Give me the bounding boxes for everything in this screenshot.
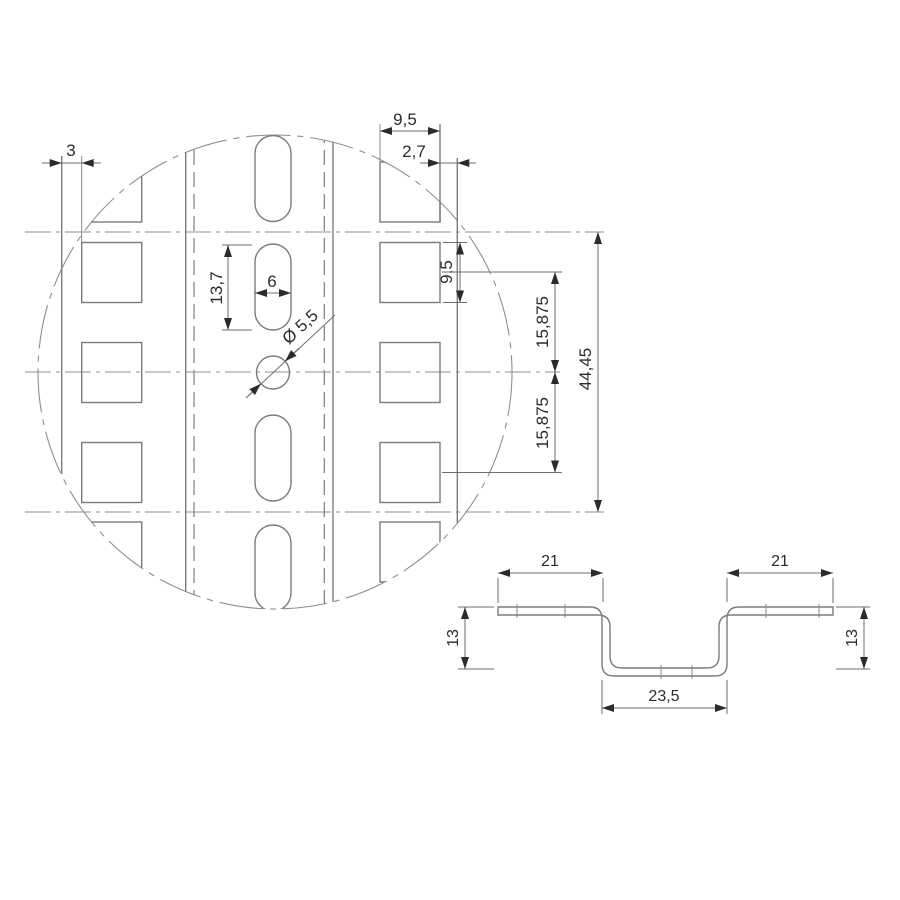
dim-channel-width-label: 23,5	[648, 688, 679, 705]
dim-slot-length: 13,7	[207, 245, 252, 330]
dim-row-pitch-upper-label: 15,875	[533, 296, 552, 348]
section-view: 21 21 13 13 23,5	[445, 553, 870, 714]
dim-hole-diameter-label: Ø 5,5	[279, 306, 322, 348]
dim-slot-length-label: 13,7	[207, 271, 226, 304]
dim-channel-width: 23,5	[602, 680, 727, 714]
detail-view: 3 9,5 2,7 13,7 6	[25, 110, 604, 616]
dim-flange-left-label: 21	[541, 553, 559, 570]
dim-square-width-top-label: 9,5	[393, 110, 417, 129]
dim-flange-right-label: 21	[771, 553, 789, 570]
dim-edge-margin: 3	[42, 141, 101, 163]
dim-flange-right: 21	[727, 553, 833, 603]
dim-depth-left: 13	[445, 607, 494, 669]
dim-depth-right-label: 13	[844, 629, 861, 647]
technical-drawing: 3 9,5 2,7 13,7 6	[0, 0, 900, 900]
dim-slot-width: 6	[255, 272, 291, 293]
dim-edge-offset-label: 2,7	[402, 142, 426, 161]
dim-total-span: 44,45	[576, 232, 598, 512]
dim-row-pitch-lower-label: 15,875	[533, 397, 552, 449]
dim-edge-offset: 2,7	[402, 142, 476, 163]
dim-row-pitch-lower: 15,875	[442, 372, 562, 473]
dim-edge-margin-label: 3	[66, 141, 75, 160]
dim-depth-left-label: 13	[445, 629, 462, 647]
dim-square-width-top: 9,5	[380, 110, 440, 131]
dim-total-span-label: 44,45	[576, 348, 595, 391]
dim-slot-width-label: 6	[267, 272, 276, 291]
dim-hole-diameter: Ø 5,5	[246, 306, 335, 398]
profile-outline	[498, 607, 833, 676]
dim-depth-right: 13	[836, 607, 870, 669]
drawing-sheet: 3 9,5 2,7 13,7 6	[0, 0, 900, 900]
centerlines	[25, 232, 604, 512]
dim-flange-left: 21	[498, 553, 603, 603]
